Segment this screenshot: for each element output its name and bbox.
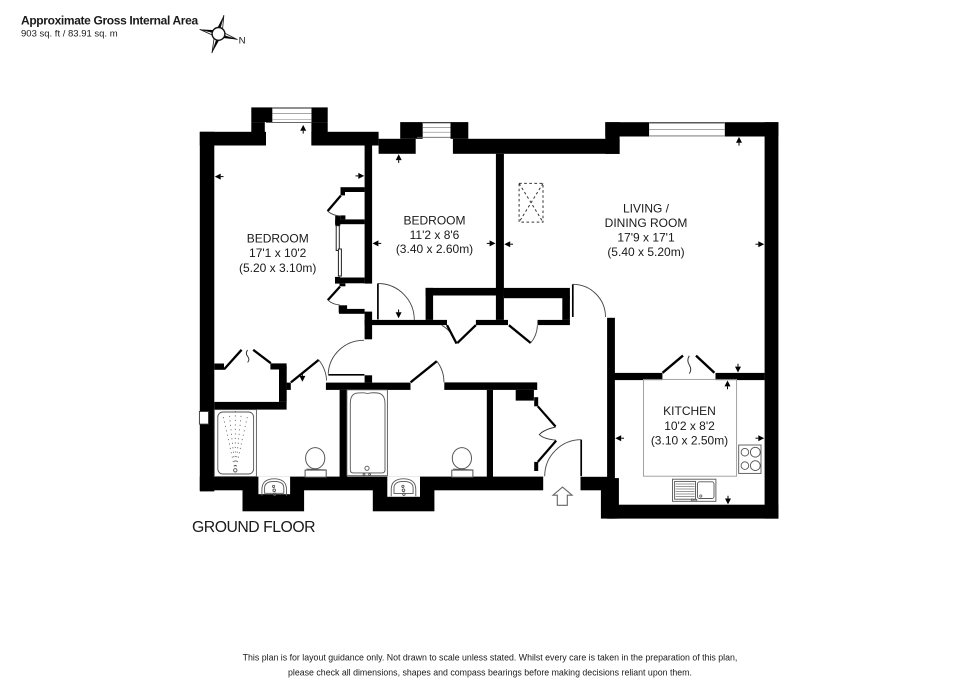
- svg-text:BEDROOM: BEDROOM: [247, 232, 309, 246]
- svg-text:(3.40 x 2.60m): (3.40 x 2.60m): [396, 242, 473, 256]
- svg-text:N: N: [239, 35, 246, 46]
- svg-text:BEDROOM: BEDROOM: [403, 214, 465, 228]
- svg-text:LIVING /: LIVING /: [623, 201, 670, 215]
- svg-text:Approximate Gross Internal Are: Approximate Gross Internal Area: [21, 13, 198, 27]
- svg-text:(5.20 x 3.10m): (5.20 x 3.10m): [239, 261, 316, 275]
- svg-text:KITCHEN: KITCHEN: [663, 404, 716, 418]
- svg-text:(5.40 x 5.20m): (5.40 x 5.20m): [607, 245, 684, 259]
- svg-text:10'2 x 8'2: 10'2 x 8'2: [664, 419, 715, 433]
- svg-text:11'2 x 8'6: 11'2 x 8'6: [410, 228, 460, 242]
- svg-text:please check all dimensions, s: please check all dimensions, shapes and …: [288, 668, 692, 678]
- svg-text:17'1 x 10'2: 17'1 x 10'2: [249, 246, 307, 260]
- svg-text:903 sq. ft / 83.91 sq. m: 903 sq. ft / 83.91 sq. m: [21, 28, 118, 39]
- svg-text:DINING ROOM: DINING ROOM: [605, 216, 688, 230]
- svg-text:GROUND FLOOR: GROUND FLOOR: [192, 519, 315, 536]
- svg-text:This plan is for layout guidan: This plan is for layout guidance only. N…: [243, 653, 738, 663]
- svg-text:17'9 x 17'1: 17'9 x 17'1: [617, 231, 675, 245]
- svg-text:(3.10 x 2.50m): (3.10 x 2.50m): [651, 433, 728, 447]
